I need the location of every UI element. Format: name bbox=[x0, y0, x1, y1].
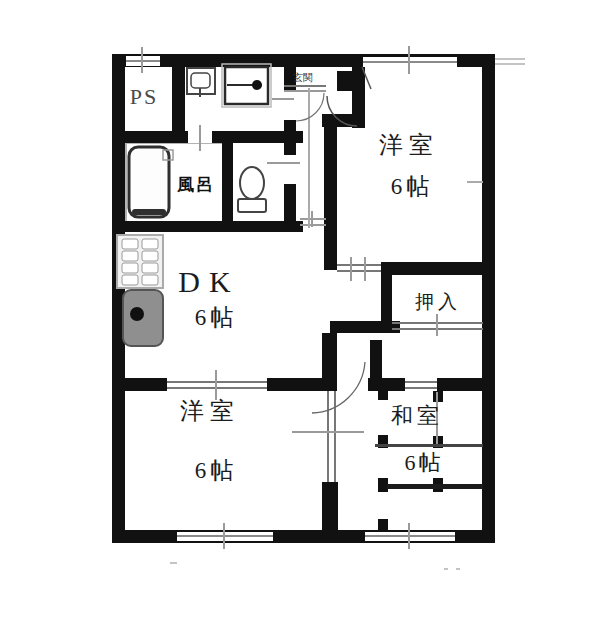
door-arc bbox=[312, 362, 365, 413]
floor-plan: PS 風呂 玄関 洋室 6帖 DK 6帖 押入 洋室 6帖 和室 6帖 bbox=[0, 0, 616, 627]
room-label-western-bottom: 洋室 bbox=[180, 399, 240, 423]
room-size-western-top: 6帖 bbox=[391, 175, 434, 198]
door-arc bbox=[296, 93, 324, 121]
room-label-bath: 風呂 bbox=[177, 176, 215, 193]
kitchen-sink-icon bbox=[123, 290, 163, 346]
room-label-dk: DK bbox=[178, 267, 239, 297]
room-size-japanese: 6帖 bbox=[405, 452, 444, 474]
kitchen-sink-drain bbox=[130, 307, 144, 321]
room-size-dk: 6帖 bbox=[195, 306, 238, 329]
room-label-entrance: 玄関 bbox=[293, 73, 313, 83]
room-label-closet: 押入 bbox=[415, 292, 461, 311]
toilet-tank bbox=[238, 199, 266, 212]
door-arc bbox=[327, 96, 357, 126]
fixtures-layer bbox=[0, 0, 616, 627]
washing-machine-drain bbox=[252, 80, 262, 90]
toilet-icon bbox=[240, 167, 264, 199]
room-size-western-bottom: 6帖 bbox=[195, 459, 238, 482]
bathtub-edge bbox=[132, 209, 166, 215]
room-label-ps: PS bbox=[130, 86, 158, 108]
room-label-western-top: 洋室 bbox=[379, 133, 439, 157]
room-label-japanese: 和室 bbox=[391, 405, 443, 427]
washbasin-bowl bbox=[191, 73, 210, 88]
door-leaf bbox=[362, 67, 371, 89]
